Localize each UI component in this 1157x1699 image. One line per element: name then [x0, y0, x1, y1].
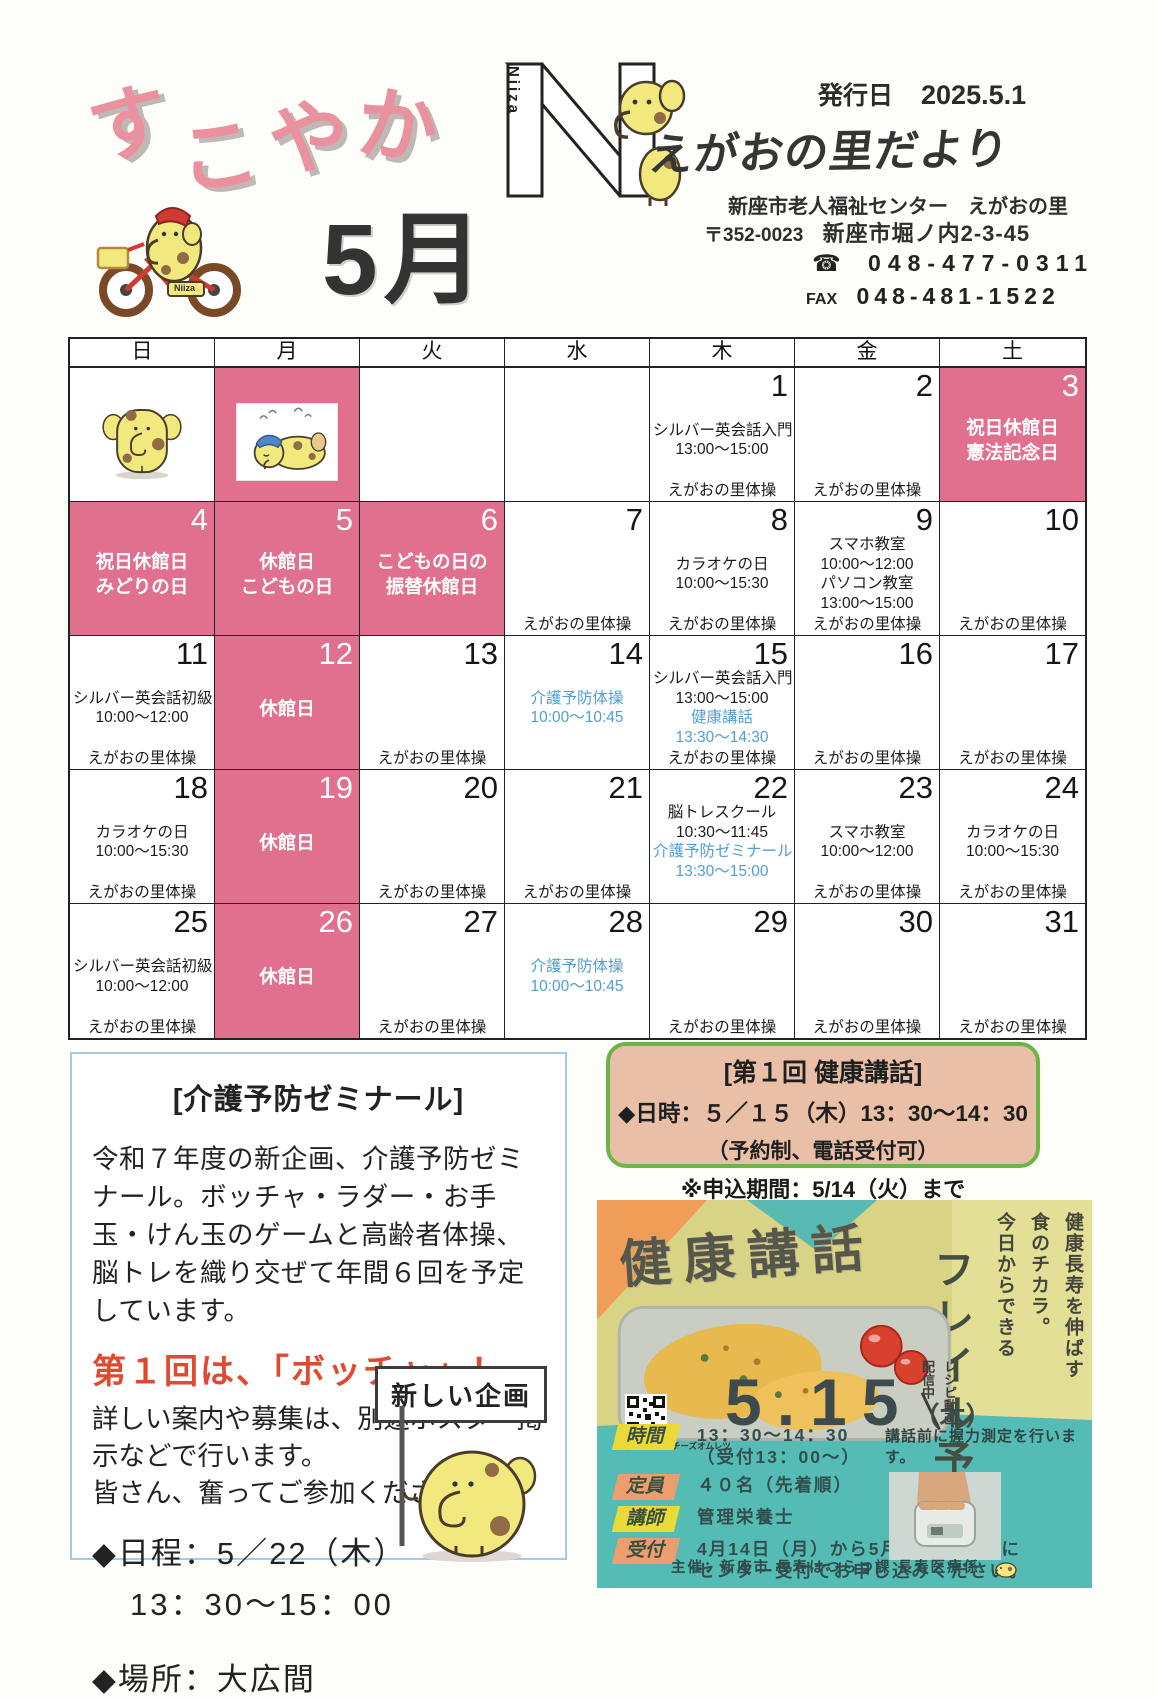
day-number: 1 — [653, 370, 791, 402]
calendar-cell-15: 15シルバー英会話入門13:00～15:00健康講話13:30～14:30えがお… — [650, 636, 795, 770]
calendar-event-taiso: えがおの里体操 — [943, 612, 1082, 633]
calendar-event-taiso — [508, 1015, 646, 1036]
day-number: 30 — [798, 906, 936, 938]
day-number: 3 — [943, 370, 1082, 402]
publication-title: えがおの里だより — [646, 113, 1014, 183]
month-title: 5月 — [322, 178, 490, 323]
street-address: 新座市堀ノ内2-3-45 — [823, 221, 1031, 246]
postal-code: 〒352-0023 — [704, 225, 803, 246]
calendar-cell-11: 11シルバー英会話初級10:00～12:00えがおの里体操 — [70, 636, 215, 770]
calendar-cell-4: 4祝日休館日みどりの日 — [70, 502, 215, 636]
grip-test-note: 講話前に握力測定を行います。 — [885, 1426, 1085, 1468]
day-number: 19 — [218, 772, 356, 804]
calendar-event-taiso: えがおの里体操 — [653, 1015, 791, 1036]
weekday-header-row: 日月火水木金土 — [70, 339, 1085, 368]
day-number: 31 — [943, 906, 1082, 938]
mascot-elephant-standing — [90, 396, 194, 481]
newsletter-title-char: す — [75, 52, 181, 184]
weekday-header-2: 火 — [360, 339, 505, 368]
calendar-event: 13:30～14:30 — [653, 728, 791, 748]
calendar-cell-6: 6こどもの日の振替休館日 — [360, 502, 505, 636]
calendar-event-taiso: えがおの里体操 — [508, 880, 646, 901]
seminar-info-box: [介護予防ゼミナール] 令和７年度の新企画、介護予防ゼミナール。ボッチャ・ラダー… — [70, 1052, 567, 1560]
poster-tagline-line2: 食のチカラ。 — [1025, 1212, 1052, 1427]
day-number — [218, 370, 356, 397]
seminar-title: [介護予防ゼミナール] — [92, 1076, 545, 1118]
calendar-cell-21: 21えがおの里体操 — [505, 770, 650, 904]
calendar-cell-31: 31えがおの里体操 — [940, 904, 1085, 1038]
day-number: 2 — [798, 370, 936, 402]
calendar-event-taiso — [218, 1015, 356, 1036]
calendar-event-taiso: えがおの里体操 — [943, 1015, 1082, 1036]
calendar-event-taiso: えがおの里体操 — [73, 880, 211, 901]
calendar-event: パソコン教室 — [798, 574, 936, 594]
monthly-calendar: 日月火水木金土 1シルバー英会話入門13:00～15:00えがおの里体操2えがお… — [68, 337, 1087, 1040]
calendar-cell — [215, 368, 360, 502]
day-number: 24 — [943, 772, 1082, 804]
calendar-event: 10:00～12:00 — [798, 842, 936, 862]
calendar-event: 10:30～11:45 — [653, 823, 791, 843]
calendar-event-taiso: えがおの里体操 — [73, 746, 211, 767]
day-number: 28 — [508, 906, 646, 938]
seminar-schedule-time: 13：30～15：00 — [92, 1579, 545, 1624]
calendar-event: 10:00～12:00 — [73, 708, 211, 728]
calendar-event-taiso: えがおの里体操 — [798, 880, 936, 901]
day-number — [73, 370, 211, 396]
calendar-event: 休館日 — [218, 696, 356, 721]
calendar-cell-7: 7えがおの里体操 — [505, 502, 650, 636]
calendar-event: シルバー英会話初級 — [73, 957, 211, 977]
calendar-cell-10: 10えがおの里体操 — [940, 502, 1085, 636]
calendar-event-taiso — [943, 478, 1082, 499]
newsletter-title-char: か — [352, 58, 444, 182]
calendar-cell-24: 24カラオケの日10:00～15:30えがおの里体操 — [940, 770, 1085, 904]
newsletter-title-char: や — [266, 73, 350, 192]
calendar-grid: 1シルバー英会話入門13:00～15:00えがおの里体操2えがおの里体操3祝日休… — [70, 368, 1085, 1038]
calendar-event-taiso — [218, 880, 356, 901]
calendar-cell-19: 19休館日 — [215, 770, 360, 904]
health-lecture-datetime: ◆日時：５／１５（木）13：30～14：30 — [610, 1096, 1036, 1128]
calendar-event-taiso — [218, 481, 356, 499]
calendar-event: スマホ教室 — [798, 823, 936, 843]
calendar-cell-14: 14介護予防体操10:00～10:45 — [505, 636, 650, 770]
day-number: 29 — [653, 906, 791, 938]
calendar-event: 脳トレスクール — [653, 803, 791, 823]
calendar-cell-18: 18カラオケの日10:00～15:30えがおの里体操 — [70, 770, 215, 904]
calendar-event: 健康講話 — [653, 708, 791, 728]
calendar-event: 13:30～15:00 — [653, 862, 791, 882]
poster-row-label: 時間 — [612, 1424, 680, 1450]
poster-organizer-text: 主催：新座市 長寿はつらつ課 長寿医療係 — [671, 1560, 980, 1576]
calendar-cell-12: 12休館日 — [215, 636, 360, 770]
calendar-event-taiso: えがおの里体操 — [943, 746, 1082, 767]
weekday-header-4: 木 — [650, 339, 795, 368]
calendar-event: 休館日 — [218, 830, 356, 855]
calendar-event-taiso: えがおの里体操 — [943, 880, 1082, 901]
day-number — [508, 370, 646, 402]
day-number: 15 — [653, 638, 791, 670]
calendar-event-taiso — [73, 612, 211, 633]
calendar-event: 13:00～15:00 — [653, 440, 791, 460]
calendar-cell-23: 23スマホ教室10:00～12:00えがおの里体操 — [795, 770, 940, 904]
weekday-header-3: 水 — [505, 339, 650, 368]
calendar-event: 祝日休館日 — [73, 549, 211, 574]
calendar-event-taiso: えがおの里体操 — [363, 746, 501, 767]
day-number: 7 — [508, 504, 646, 536]
calendar-event: カラオケの日 — [73, 823, 211, 843]
health-lecture-box: [第１回 健康講話] ◆日時：５／１５（木）13：30～14：30 （予約制、電… — [606, 1042, 1040, 1168]
calendar-event: 13:00～15:00 — [798, 594, 936, 614]
calendar-cell-22: 22脳トレスクール10:30～11:45介護予防ゼミナール13:30～15:00 — [650, 770, 795, 904]
calendar-event: 10:00～15:30 — [943, 842, 1082, 862]
calendar-event: カラオケの日 — [943, 823, 1082, 843]
calendar-cell-5: 5休館日こどもの日 — [215, 502, 360, 636]
health-lecture-reservation-note: （予約制、電話受付可） — [610, 1135, 1036, 1165]
calendar-event: 介護予防体操 — [508, 689, 646, 709]
weekday-header-0: 日 — [70, 339, 215, 368]
calendar-event-taiso: えがおの里体操 — [653, 612, 791, 633]
calendar-event-taiso — [73, 482, 211, 499]
calendar-event-taiso — [218, 746, 356, 767]
grip-strength-photo — [889, 1472, 1001, 1565]
weekday-header-5: 金 — [795, 339, 940, 368]
day-number: 11 — [73, 638, 211, 670]
poster-tagline-line3: 今日からできる — [991, 1212, 1018, 1427]
calendar-event: スマホ教室 — [798, 535, 936, 555]
day-number: 20 — [363, 772, 501, 804]
day-number: 14 — [508, 638, 646, 670]
calendar-event: 休館日 — [218, 549, 356, 574]
calendar-event: 10:00～12:00 — [73, 977, 211, 997]
calendar-cell-29: 29えがおの里体操 — [650, 904, 795, 1038]
calendar-event-taiso: えがおの里体操 — [653, 478, 791, 499]
calendar-cell-30: 30えがおの里体操 — [795, 904, 940, 1038]
newsletter-page: { "header": { "newsletter_title": "すこやか"… — [0, 0, 1157, 1636]
day-number: 6 — [363, 504, 501, 536]
poster-organizer: 主催：新座市 長寿はつらつ課 長寿医療係 — [597, 1556, 1092, 1578]
poster-row-value: 13：30～14：30（受付13：00～） — [697, 1424, 861, 1468]
calendar-event-taiso — [363, 478, 501, 499]
day-number: 13 — [363, 638, 501, 670]
calendar-event-taiso — [653, 880, 791, 901]
calendar-event: シルバー英会話入門 — [653, 421, 791, 441]
poster-row-value: ４０名（先着順） — [697, 1474, 853, 1496]
telephone-line: ☎ 048-477-0311 — [812, 250, 1094, 277]
fax-line: FAX 048-481-1522 — [806, 283, 1060, 310]
calendar-event: 振替休館日 — [363, 574, 501, 599]
calendar-cell-28: 28介護予防体操10:00～10:45 — [505, 904, 650, 1038]
calendar-cell-16: 16えがおの里体操 — [795, 636, 940, 770]
calendar-event-taiso: えがおの里体操 — [653, 746, 791, 767]
health-lecture-title: [第１回 健康講話] — [610, 1053, 1036, 1089]
calendar-cell-27: 27えがおの里体操 — [360, 904, 505, 1038]
calendar-event-taiso: えがおの里体操 — [798, 1015, 936, 1036]
day-number — [363, 370, 501, 402]
calendar-event: シルバー英会話初級 — [73, 689, 211, 709]
calendar-cell-8: 8カラオケの日10:00～15:30えがおの里体操 — [650, 502, 795, 636]
calendar-event-taiso: えがおの里体操 — [508, 612, 646, 633]
calendar-event-taiso: えがおの里体操 — [363, 880, 501, 901]
day-number: 8 — [653, 504, 791, 536]
calendar-cell-17: 17えがおの里体操 — [940, 636, 1085, 770]
calendar-cell — [70, 368, 215, 502]
poster-row-value: 管理栄養士 — [697, 1506, 795, 1528]
calendar-event: 10:00～15:30 — [73, 842, 211, 862]
calendar-event-taiso — [508, 478, 646, 499]
day-number: 23 — [798, 772, 936, 804]
mascot-elephant-signholder — [372, 1406, 547, 1571]
calendar-event-taiso: えがおの里体操 — [363, 1015, 501, 1036]
fax-label: FAX — [806, 291, 837, 308]
calendar-event: 10:00～15:30 — [653, 574, 791, 594]
day-number: 12 — [218, 638, 356, 670]
calendar-event-taiso: えがおの里体操 — [798, 746, 936, 767]
poster-tagline: 健康長寿を伸ばす 食のチカラ。 今日からできる — [984, 1212, 1086, 1427]
calendar-event-taiso: えがおの里体操 — [798, 612, 936, 633]
day-number: 4 — [73, 504, 211, 536]
calendar-event-taiso — [508, 746, 646, 767]
weekday-header-1: 月 — [215, 339, 360, 368]
address-line: 〒352-0023 新座市堀ノ内2-3-45 — [704, 216, 1030, 248]
mascot-elephant-sleeping — [236, 403, 338, 482]
calendar-event: 13:00～15:00 — [653, 689, 791, 709]
calendar-event: みどりの日 — [73, 574, 211, 599]
calendar-cell — [360, 368, 505, 502]
phone-icon: ☎ — [812, 250, 841, 276]
calendar-event: カラオケの日 — [653, 555, 791, 575]
calendar-event-taiso — [218, 612, 356, 633]
poster-row-label: 定員 — [612, 1474, 680, 1500]
day-number: 9 — [798, 504, 936, 536]
calendar-cell-3: 3祝日休館日憲法記念日 — [940, 368, 1085, 502]
health-lecture-poster: 健康講話 健康長寿を伸ばす 食のチカラ。 今日からできる フレイル予防 レシピ動… — [597, 1200, 1092, 1588]
weekday-header-6: 土 — [940, 339, 1085, 368]
day-number: 5 — [218, 504, 356, 536]
day-number: 26 — [218, 906, 356, 938]
calendar-event-taiso: えがおの里体操 — [73, 1015, 211, 1036]
phone-number: 048-477-0311 — [868, 250, 1094, 276]
day-number: 21 — [508, 772, 646, 804]
day-number: 27 — [363, 906, 501, 938]
day-number: 22 — [653, 772, 791, 804]
issue-date-label: 発行日 — [818, 76, 893, 112]
calendar-cell — [505, 368, 650, 502]
calendar-event: 10:00～12:00 — [798, 555, 936, 575]
organization-name: 新座市老人福祉センター えがおの里 — [728, 190, 1068, 219]
mascot-elephant-tiny — [994, 1560, 1018, 1578]
mascot-elephant-bicycle: Niiza — [86, 186, 256, 323]
calendar-cell-13: 13えがおの里体操 — [360, 636, 505, 770]
issue-line: 発行日 2025.5.1 — [818, 76, 1026, 112]
day-number: 17 — [943, 638, 1082, 670]
calendar-cell-2: 2えがおの里体操 — [795, 368, 940, 502]
calendar-event: 介護予防ゼミナール — [653, 842, 791, 862]
calendar-cell-26: 26休館日 — [215, 904, 360, 1038]
fax-number: 048-481-1522 — [857, 283, 1060, 309]
calendar-event: 10:00～10:45 — [508, 977, 646, 997]
calendar-event: 祝日休館日 — [943, 415, 1082, 440]
calendar-event: こどもの日の — [363, 549, 501, 574]
calendar-event: 10:00～10:45 — [508, 708, 646, 728]
calendar-event: 休館日 — [218, 964, 356, 989]
calendar-cell-9: 9スマホ教室10:00～12:00パソコン教室13:00～15:00えがおの里体… — [795, 502, 940, 636]
calendar-cell-25: 25シルバー英会話初級10:00～12:00えがおの里体操 — [70, 904, 215, 1038]
issue-date-value: 2025.5.1 — [921, 80, 1026, 111]
day-number: 18 — [73, 772, 211, 804]
calendar-event-taiso — [363, 612, 501, 633]
day-number: 16 — [798, 638, 936, 670]
calendar-cell-1: 1シルバー英会話入門13:00～15:00えがおの里体操 — [650, 368, 795, 502]
day-number: 10 — [943, 504, 1082, 536]
calendar-event: 憲法記念日 — [943, 440, 1082, 465]
poster-tagline-line1: 健康長寿を伸ばす — [1059, 1212, 1086, 1427]
calendar-event: こどもの日 — [218, 574, 356, 599]
day-number: 25 — [73, 906, 211, 938]
calendar-event-taiso: えがおの里体操 — [798, 478, 936, 499]
calendar-event: 介護予防体操 — [508, 957, 646, 977]
calendar-cell-20: 20えがおの里体操 — [360, 770, 505, 904]
poster-row-label: 講師 — [612, 1506, 680, 1532]
calendar-event: シルバー英会話入門 — [653, 669, 791, 689]
seminar-paragraph-1: 令和７年度の新企画、介護予防ゼミナール。ボッチャ・ラダー・お手玉・けん玉のゲーム… — [92, 1140, 545, 1330]
seminar-place: ◆場所：大広間 — [92, 1654, 545, 1699]
niiza-logo-vertical-text: Niiza — [505, 66, 522, 116]
bike-plate-text: Niiza — [174, 283, 195, 293]
